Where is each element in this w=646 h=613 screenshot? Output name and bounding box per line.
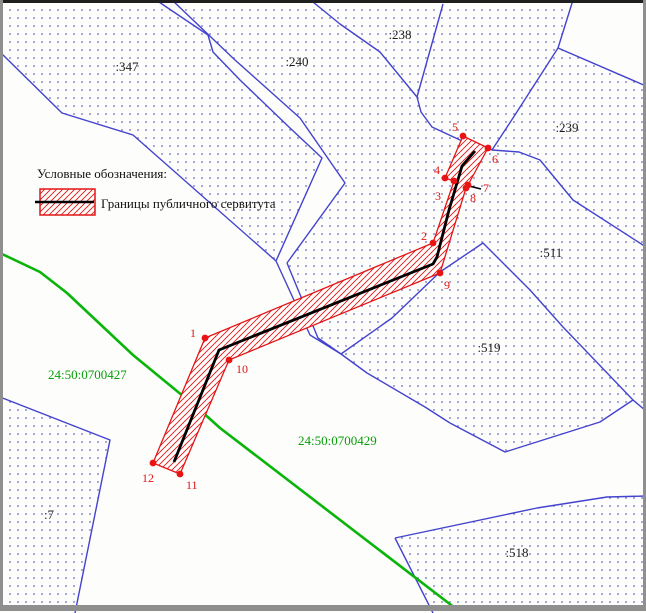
point-label-3: 3 [435,189,441,203]
frame-left [0,0,3,611]
cadastral-quarter-label-429: 24:50:0700429 [298,433,377,448]
point-label-8: 8 [470,191,476,205]
point-marker-12 [150,460,157,467]
point-marker-3 [451,178,458,185]
parcel-label-519: :519 [477,340,500,355]
parcel-label-518: :518 [505,545,528,560]
point-label-5: 5 [452,120,458,134]
frame-top [0,0,646,3]
point-label-2: 2 [421,229,427,243]
parcel-label-240: :240 [285,54,308,69]
legend-item-label: Границы публичного сервитута [101,196,276,211]
point-marker-6 [485,145,492,152]
point-marker-1 [202,335,209,342]
point-label-1: 1 [190,326,196,340]
parcel-label-239: :239 [555,120,578,135]
map-canvas: 1 2 3 4 5 6 7 8 9 10 11 12 :347 :240 :23… [0,0,646,613]
parcel-label-347: :347 [115,59,139,74]
point-marker-9 [437,270,444,277]
cadastral-map-svg: 1 2 3 4 5 6 7 8 9 10 11 12 :347 :240 :23… [0,0,646,613]
point-label-6: 6 [492,152,498,166]
parcel-label-511: :511 [540,245,563,260]
point-label-12: 12 [142,471,154,485]
frame-bottom [0,605,646,611]
point-label-7: 7 [483,181,489,195]
point-label-9: 9 [444,278,450,292]
point-marker-8 [463,185,470,192]
point-marker-4 [442,175,449,182]
legend-title: Условные обозначения: [37,166,167,181]
parcel-label-7: :7 [44,507,55,522]
point-label-4: 4 [434,163,440,177]
point-marker-5 [460,133,467,140]
point-marker-11 [177,471,184,478]
parcel-label-238: :238 [388,27,411,42]
point-label-11: 11 [186,478,198,492]
point-marker-2 [430,240,437,247]
point-marker-10 [226,357,233,364]
point-label-10: 10 [236,362,248,376]
cadastral-quarter-label-427: 24:50:0700427 [48,367,127,382]
